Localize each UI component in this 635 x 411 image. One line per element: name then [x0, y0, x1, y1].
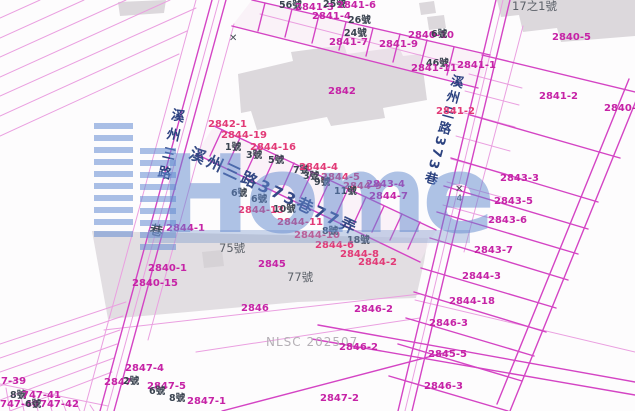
parcel-number-label: 2847-1	[187, 397, 226, 407]
parcel-number-label: 2841-2	[436, 107, 475, 117]
parcel-number-label: 2840-15	[132, 279, 178, 289]
parcel-number-label: 2841-2	[539, 92, 578, 102]
parcel-number-label: 2841-7	[329, 38, 368, 48]
parcel-number-label: 2845-5	[428, 350, 467, 360]
house-number-label: 6號	[25, 400, 41, 410]
house-number-label: 6號	[431, 30, 447, 40]
parcel-number-label: 2846-3	[424, 382, 463, 392]
parcel-number-label: 2843-6	[488, 216, 527, 226]
parcel-number-label: 2840-5	[552, 33, 591, 43]
parcel-number-label: 2841-9	[379, 40, 418, 50]
control-point-cross-icon: ✕	[229, 34, 237, 44]
parcel-number-label: 2844-2	[358, 258, 397, 268]
parcel-number-label: 2846-3	[429, 319, 468, 329]
parcel-number-label: 747-42	[40, 400, 79, 410]
house-number-label: 26號	[348, 16, 371, 26]
parcel-number-label: 7-39	[1, 377, 26, 387]
parcel-number-label: 2840-1	[148, 264, 187, 274]
parcel-number-label: 2840-1	[604, 104, 635, 114]
parcel-number-label: 2845	[258, 260, 286, 270]
parcel-number-label: 2841-11	[411, 64, 457, 74]
parcel-number-label: 2842	[328, 87, 356, 97]
parcel-number-label: 2841-4	[312, 12, 351, 22]
parcel-number-label: 2846-2	[339, 343, 378, 353]
parcel-number-label: 2841-1	[457, 61, 496, 71]
house-number-label: 2號	[123, 377, 139, 387]
watermark-stripes-icon	[94, 123, 133, 239]
parcel-number-label: 2843-5	[494, 197, 533, 207]
cadastral-map-canvas[interactable]: 溪州三路 巷 溪州三路373巷77弄 溪州三路373巷 56號2841-325號…	[0, 0, 635, 411]
parcel-number-label: 2846-2	[354, 305, 393, 315]
parcel-number-label: 2846	[241, 304, 269, 314]
parcel-number-label: 2844-18	[449, 297, 495, 307]
parcel-number-label: 17之1號	[512, 1, 557, 13]
parcel-number-label: 77號	[287, 272, 313, 284]
house-number-label: 6號	[149, 387, 165, 397]
parcel-number-label: 2844-3	[462, 272, 501, 282]
parcel-number-label: 2843-3	[500, 174, 539, 184]
watermark-logo-text: Home	[160, 142, 490, 250]
parcel-number-label: 2847-2	[320, 394, 359, 404]
parcel-number-label: 2842-1	[208, 120, 247, 130]
house-number-label: 8號	[169, 394, 185, 404]
parcel-number-label: 2847-4	[125, 364, 164, 374]
parcel-number-label: 2841-6	[337, 1, 376, 11]
survey-control-point: ✕	[229, 34, 237, 44]
